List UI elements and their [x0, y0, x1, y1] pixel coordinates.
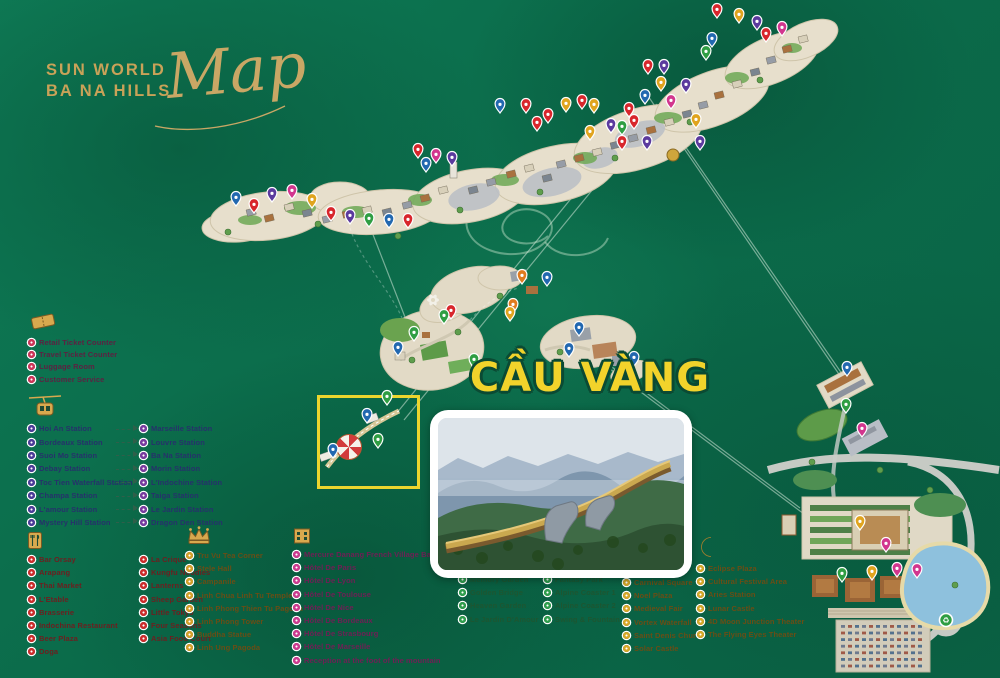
- legend-item: Doga: [28, 645, 140, 658]
- legend-item: Reception at the foot of the mountain: [293, 654, 504, 667]
- moon-icon: [697, 536, 805, 558]
- dotted-connector: [116, 454, 136, 456]
- legend-item-label: Alpine Coaster 2: [555, 601, 616, 610]
- legend-bullet-icon: [623, 645, 630, 652]
- station-pair-row: Champa StationTaiga Station: [28, 489, 223, 502]
- legend-item-label: Saint Denis Church: [634, 631, 705, 640]
- legend-item-label: Thai Market: [39, 581, 82, 590]
- legend-item: The Flying Eyes Theater: [697, 628, 805, 641]
- legend-bullet-icon: [140, 556, 147, 563]
- legend-bullet-icon: [697, 631, 704, 638]
- legend-item-label: Louvre Station: [151, 438, 205, 447]
- legend-item-label: Linh Ung Pagoda: [197, 643, 260, 652]
- dotted-connector: [116, 428, 136, 430]
- legend-item-label: Noel Plaza: [634, 591, 673, 600]
- legend-item-label: Tru Vu Tea Corner: [197, 551, 263, 560]
- legend-item-label: Le Jardin Station: [151, 505, 214, 514]
- dotted-connector: [116, 468, 136, 470]
- legend-bullet-icon: [186, 552, 193, 559]
- legend-item-label: Linh Chua Linh Tu Temple: [197, 591, 292, 600]
- legend-item: Alpine Coaster 1: [544, 586, 620, 599]
- legend-item: Buddha Statue: [186, 628, 303, 641]
- legend-item: Hoi An Station: [28, 422, 116, 435]
- pond: [902, 543, 988, 628]
- legend-bullet-icon: [459, 589, 466, 596]
- dotted-connector: [116, 508, 136, 510]
- legend-item: Brasserie: [28, 606, 140, 619]
- legend-bullet-icon: [623, 579, 630, 586]
- ba-na-hills-map-poster: ♻ CẦU VÀNG: [0, 0, 1000, 678]
- legend-item-label: Luggage Room: [39, 362, 95, 371]
- legend-bullet-icon: [544, 616, 551, 623]
- legend-item-label: Taiga Station: [151, 491, 199, 500]
- legend-item: Lunar Castle: [697, 602, 805, 615]
- legend-bullet-icon: [140, 519, 147, 526]
- legend-bullet-icon: [28, 569, 35, 576]
- legend-bullet-icon: [697, 565, 704, 572]
- legend-bullet-icon: [28, 609, 35, 616]
- legend-bullet-icon: [28, 519, 35, 526]
- legend-group-stations: Hoi An StationMarseille StationBordeaux …: [28, 394, 223, 529]
- golden-bridge-pinwheel: [336, 434, 362, 460]
- legend-bullet-icon: [28, 492, 35, 499]
- legend-item-label: L'amour Station: [39, 505, 97, 514]
- legend-item: Hôtel De Strasbourg: [293, 627, 504, 640]
- legend-item: Tru Vu Tea Corner: [186, 549, 303, 562]
- legend-item-label: Carnival Square: [634, 578, 693, 587]
- legend-bullet-icon: [140, 425, 147, 432]
- legend-bullet-icon: [140, 635, 147, 642]
- legend-item-label: Vortex Waterfall: [634, 618, 692, 627]
- legend-item: Taiga Station: [140, 489, 199, 502]
- legend-bullet-icon: [293, 643, 300, 650]
- station-pair-row: Hoi An StationMarseille Station: [28, 422, 223, 435]
- legend-item: Golden Bridge: [459, 586, 544, 599]
- legend-item-label: Hôtel De Nice: [304, 603, 354, 612]
- legend-item-label: Solar Castle: [634, 644, 679, 653]
- legend-bullet-icon: [186, 592, 193, 599]
- legend-item-label: Morin Station: [151, 464, 200, 473]
- legend-item: Linh Phong Tower: [186, 615, 303, 628]
- legend-item-label: Buddha Statue: [197, 630, 251, 639]
- legend-bullet-icon: [140, 596, 147, 603]
- legend-item: Campanile: [186, 575, 303, 588]
- legend-item: Cultural Festival Area: [697, 575, 805, 588]
- ticket-icon: [28, 310, 117, 332]
- legend-bullet-icon: [28, 363, 35, 370]
- legend-item-label: Heaven Garden: [470, 601, 526, 610]
- legend-item-label: Eclipse Plaza: [708, 564, 757, 573]
- legend-item: Stele Hall: [186, 562, 303, 575]
- legend-item: Saint Denis Church: [623, 629, 705, 642]
- legend-item-label: Cultural Festival Area: [708, 577, 787, 586]
- legend-bullet-icon: [28, 582, 35, 589]
- dining-icon: [28, 532, 211, 549]
- legend-bullet-icon: [140, 609, 147, 616]
- legend-bullet-icon: [28, 465, 35, 472]
- legend-bullet-icon: [28, 635, 35, 642]
- legend-item: Alpine Coaster 2: [544, 599, 620, 612]
- legend-bullet-icon: [28, 556, 35, 563]
- legend-item-label: Bordeaux Station: [39, 438, 103, 447]
- dotted-connector: [116, 521, 136, 523]
- legend-bullet-icon: [293, 591, 300, 598]
- legend-bullet-icon: [544, 602, 551, 609]
- legend-item: Linh Ung Pagoda: [186, 641, 303, 654]
- legend-item-label: Alpine Coaster 1: [555, 588, 616, 597]
- legend-item: Indochina Restaurant: [28, 619, 140, 632]
- legend-item-label: 4D Moon Junction Theater: [708, 617, 805, 626]
- legend-item-label: Lunar Castle: [708, 604, 755, 613]
- legend-item-label: Aries Station: [708, 590, 756, 599]
- legend-bullet-icon: [697, 618, 704, 625]
- legend-item: Beer Plaza: [28, 632, 140, 645]
- legend-bullet-icon: [28, 376, 35, 383]
- legend-item: Swing & Fountain: [544, 613, 620, 626]
- legend-group-moonlight: Eclipse PlazaCultural Festival AreaAries…: [697, 536, 805, 641]
- legend-item-label: Debay Station: [39, 464, 90, 473]
- legend-item: Bar Orsay: [28, 553, 140, 566]
- legend-item: Thai Market: [28, 579, 140, 592]
- legend-item: L'Indochine Station: [140, 476, 222, 489]
- legend-item-label: Campanile: [197, 577, 236, 586]
- legend-item-label: Retail Ticket Counter: [39, 338, 116, 347]
- legend-item-label: Linh Phong Thien Tu Pagoda: [197, 604, 303, 613]
- legend-bullet-icon: [186, 565, 193, 572]
- legend-bullet-icon: [697, 591, 704, 598]
- legend-item: 4D Moon Junction Theater: [697, 615, 805, 628]
- legend-item-label: Le Jardin D'Amour: [470, 615, 539, 624]
- legend-bullet-icon: [140, 582, 147, 589]
- legend-bullet-icon: [544, 589, 551, 596]
- legend-item: Luggage Room: [28, 361, 117, 373]
- legend-item: Hôtel De Marseille: [293, 640, 504, 653]
- golden-bridge-photo: [430, 410, 692, 578]
- legend-bullet-icon: [697, 578, 704, 585]
- brand-line-1: SUN WORLD: [46, 60, 171, 81]
- dotted-connector: [116, 481, 136, 483]
- legend-bullet-icon: [186, 605, 193, 612]
- legend-item: Mystery Hill Station: [28, 516, 116, 529]
- legend-item-label: Travel Ticket Counter: [39, 350, 117, 359]
- legend-bullet-icon: [28, 452, 35, 459]
- legend-bullet-icon: [140, 506, 147, 513]
- legend-bullet-icon: [140, 622, 147, 629]
- legend-bullet-icon: [293, 564, 300, 571]
- script-flourish: [150, 98, 290, 138]
- legend-item: L'amour Station: [28, 502, 116, 515]
- legend-item-label: Medieval Fair: [634, 604, 683, 613]
- legend-group-dining: Bar OrsayArapangThai MarketL'EtableBrass…: [28, 532, 211, 659]
- legend-item-label: Stele Hall: [197, 564, 232, 573]
- brand-logo: SUN WORLD BA NA HILLS: [46, 60, 171, 102]
- legend-bullet-icon: [28, 351, 35, 358]
- legend-item-label: Swing & Fountain: [555, 615, 620, 624]
- legend-item: Champa Station: [28, 489, 116, 502]
- legend-bullet-icon: [140, 492, 147, 499]
- legend-item-label: Mystery Hill Station: [39, 518, 111, 527]
- legend-item-label: Champa Station: [39, 491, 98, 500]
- legend-item-label: Golden Bridge: [470, 588, 523, 597]
- legend-item: Retail Ticket Counter: [28, 336, 117, 348]
- legend-item-label: Ba Na Station: [151, 451, 201, 460]
- legend-item-label: The Flying Eyes Theater: [708, 630, 797, 639]
- legend-item: Solar Castle: [623, 642, 705, 655]
- legend-item: Le Jardin D'Amour: [459, 613, 544, 626]
- legend-bullet-icon: [186, 644, 193, 651]
- legend-item: Customer Service: [28, 373, 117, 385]
- legend-item-label: Hoi An Station: [39, 424, 92, 433]
- legend-item: Noel Plaza: [623, 589, 705, 602]
- legend-bullet-icon: [186, 631, 193, 638]
- legend-bullet-icon: [623, 619, 630, 626]
- legend-bullet-icon: [140, 479, 147, 486]
- legend-bullet-icon: [140, 439, 147, 446]
- legend-item-label: Hôtel De Lyon: [304, 576, 355, 585]
- legend-item: Linh Chua Linh Tu Temple: [186, 589, 303, 602]
- legend-bullet-icon: [293, 630, 300, 637]
- golden-bridge-label: CẦU VÀNG: [440, 355, 740, 401]
- legend-bullet-icon: [28, 648, 35, 655]
- legend-item-label: Beer Plaza: [39, 634, 78, 643]
- legend-item-label: Indochina Restaurant: [39, 621, 118, 630]
- legend-bullet-icon: [623, 592, 630, 599]
- legend-item: Aries Station: [697, 588, 805, 601]
- legend-bullet-icon: [140, 465, 147, 472]
- legend-bullet-icon: [293, 604, 300, 611]
- legend-item-label: L'Indochine Station: [151, 478, 222, 487]
- legend-item: Eclipse Plaza: [697, 562, 805, 575]
- station-pair-row: Bordeaux StationLouvre Station: [28, 435, 223, 448]
- legend-item: Vortex Waterfall: [623, 616, 705, 629]
- legend-item: Medieval Fair: [623, 602, 705, 615]
- legend-item-label: L'Etable: [39, 595, 69, 604]
- legend-item-label: Doga: [39, 647, 58, 656]
- legend-item-label: Marseille Station: [151, 424, 212, 433]
- legend-item-label: Reception at the foot of the mountain: [304, 656, 441, 665]
- legend-item: Ba Na Station: [140, 449, 201, 462]
- legend-item-label: Brasserie: [39, 608, 74, 617]
- golden-bridge-highlight-box: [317, 395, 420, 489]
- legend-bullet-icon: [28, 506, 35, 513]
- legend-item: Marseille Station: [140, 422, 212, 435]
- legend-item-label: Hôtel De Strasbourg: [304, 629, 378, 638]
- legend-item: Morin Station: [140, 462, 200, 475]
- legend-group-squares: Carnival SquareNoel PlazaMedieval FairVo…: [623, 576, 705, 655]
- legend-item: L'Etable: [28, 593, 140, 606]
- legend-bullet-icon: [140, 569, 147, 576]
- legend-bullet-icon: [140, 452, 147, 459]
- legend-bullet-icon: [623, 605, 630, 612]
- legend-item: Heaven Garden: [459, 599, 544, 612]
- station-pair-row: Suoi Mo StationBa Na Station: [28, 449, 223, 462]
- legend-bullet-icon: [28, 339, 35, 346]
- legend-item: Debay Station: [28, 462, 116, 475]
- legend-bullet-icon: [293, 617, 300, 624]
- station-pair-row: L'amour StationLe Jardin Station: [28, 502, 223, 515]
- legend-bullet-icon: [697, 605, 704, 612]
- legend-item: Le Jardin Station: [140, 502, 214, 515]
- legend-item-label: Arapang: [39, 568, 70, 577]
- legend-group-tickets: Retail Ticket CounterTravel Ticket Count…: [28, 310, 117, 386]
- legend-item: Linh Phong Thien Tu Pagoda: [186, 602, 303, 615]
- legend-bullet-icon: [293, 577, 300, 584]
- golden-bridge-photo-image: [438, 418, 684, 570]
- legend-item: Suoi Mo Station: [28, 449, 116, 462]
- legend-item-label: La Crique: [151, 555, 187, 564]
- legend-item: Arapang: [28, 566, 140, 579]
- legend-bullet-icon: [293, 657, 300, 664]
- station-pair-row: Toc Tien Waterfall StationL'Indochine St…: [28, 476, 223, 489]
- legend-item-label: Hôtel De Toulouse: [304, 590, 371, 599]
- dotted-connector: [116, 495, 136, 497]
- legend-item-label: Bar Orsay: [39, 555, 76, 564]
- legend-item: Louvre Station: [140, 435, 205, 448]
- legend-bullet-icon: [28, 425, 35, 432]
- legend-bullet-icon: [459, 602, 466, 609]
- legend-bullet-icon: [186, 578, 193, 585]
- legend-bullet-icon: [28, 622, 35, 629]
- legend-bullet-icon: [28, 596, 35, 603]
- legend-item-label: Linh Phong Tower: [197, 617, 263, 626]
- legend-bullet-icon: [459, 616, 466, 623]
- legend-item-label: Customer Service: [39, 375, 104, 384]
- cable-car-icon: [28, 394, 223, 418]
- legend-item-label: Suoi Mo Station: [39, 451, 97, 460]
- legend-item: Travel Ticket Counter: [28, 348, 117, 360]
- legend-bullet-icon: [28, 479, 35, 486]
- crown-icon: [186, 526, 303, 545]
- legend-item: Toc Tien Waterfall Station: [28, 476, 116, 489]
- legend-item-label: Lanterns: [151, 581, 183, 590]
- legend-group-spiritual: Tru Vu Tea CornerStele HallCampanileLinh…: [186, 526, 303, 655]
- legend-bullet-icon: [186, 618, 193, 625]
- dotted-connector: [116, 441, 136, 443]
- station-pair-row: Debay StationMorin Station: [28, 462, 223, 475]
- legend-bullet-icon: [293, 551, 300, 558]
- legend-bullet-icon: [623, 632, 630, 639]
- legend-bullet-icon: [28, 439, 35, 446]
- legend-item-label: Hôtel De Paris: [304, 563, 356, 572]
- legend-item-label: Hôtel De Bordeaux: [304, 616, 373, 625]
- legend-item: Bordeaux Station: [28, 435, 116, 448]
- legend-item-label: Hôtel De Marseille: [304, 642, 370, 651]
- legend-group-gardens: Memory GardenGolden BridgeHeaven GardenL…: [459, 573, 620, 626]
